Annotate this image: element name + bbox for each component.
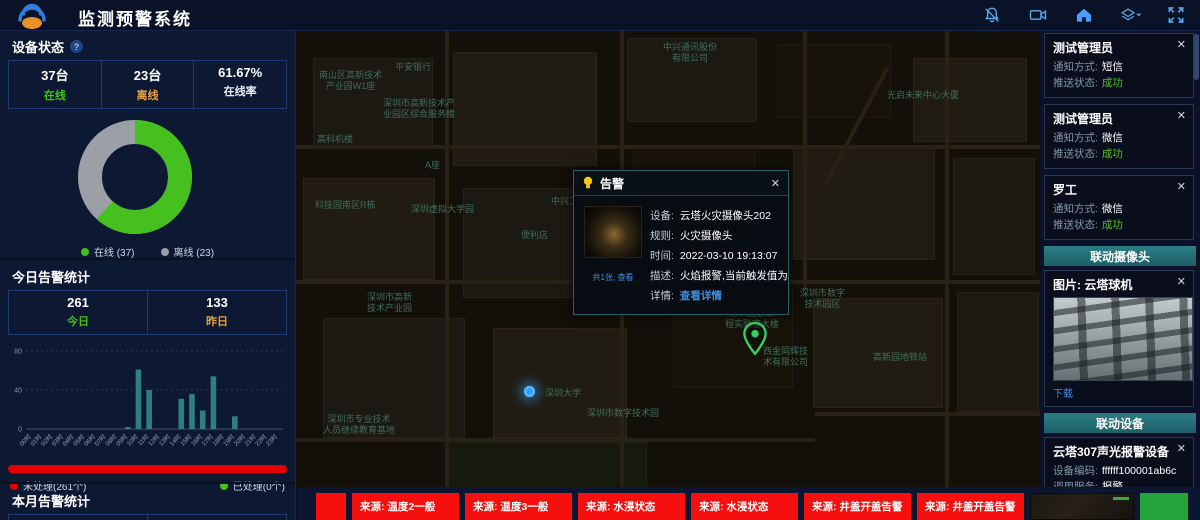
field-label: 推送状态: (1053, 219, 1098, 231)
bar (189, 394, 195, 429)
field-value: 成功 (1102, 148, 1123, 160)
stat-label: 在线率 (194, 83, 286, 99)
map-label: 深圳大学 (545, 388, 581, 399)
ticker-snapshot-image[interactable] (1030, 493, 1134, 520)
svg-text:23时: 23时 (264, 433, 279, 448)
fullscreen-icon[interactable] (1166, 4, 1188, 26)
alert-location-pin[interactable] (742, 322, 768, 356)
map-label: 深圳市专业技术 人员继续教育基地 (323, 414, 395, 436)
hourly-alerts-bar-chart: 0408000时01时02时03时04时05时06时07时08时09时10时11… (6, 339, 289, 461)
download-link[interactable]: 下载 (1053, 385, 1185, 400)
popup-field-label: 详情: (650, 286, 674, 306)
field-value: 微信 (1102, 203, 1123, 215)
popup-field-row: 详情:查看详情 (650, 286, 788, 306)
popup-field-label: 规则: (650, 226, 674, 246)
field-label: 通知方式: (1053, 132, 1098, 144)
field-label: 通知方式: (1053, 61, 1098, 73)
map-label: 深圳市高新 技术产业园 (367, 292, 412, 314)
today-alerts-title: 今日告警统计 (0, 260, 295, 290)
monitoring-dashboard: 监测预警系统 (0, 0, 1200, 520)
device-status-donut-chart (60, 102, 210, 252)
popup-field-row: 设备:云塔火灾摄像头202 (650, 206, 788, 226)
legend-label: 离线 (23) (174, 244, 215, 259)
map-label: 深圳市高新技术产 业园区综合服务楼 (383, 98, 455, 120)
stat-cell: 763 (9, 515, 148, 520)
close-icon[interactable]: ✕ (1177, 442, 1186, 455)
notification-card: 测试管理员✕通知方式:短信推送状态:成功 (1044, 33, 1194, 98)
notification-status-row: 推送状态:成功 (1053, 146, 1185, 162)
ticker-alert-item[interactable] (316, 493, 346, 520)
map-label: 光启未来中心大厦 (887, 90, 959, 101)
app-title: 监测预警系统 (78, 5, 192, 30)
notification-card: 罗工✕通知方式:微信推送状态:成功 (1044, 175, 1194, 240)
app-header: 监测预警系统 (0, 0, 1200, 31)
bar (232, 416, 238, 429)
popup-field-row: 时间:2022-03-10 19:13:07 (650, 246, 788, 266)
notification-status-row: 推送状态:成功 (1053, 75, 1185, 91)
notification-method-row: 通知方式:微信 (1053, 201, 1185, 217)
map-label: 高科机楼 (317, 134, 353, 145)
notification-method-row: 通知方式:微信 (1053, 130, 1185, 146)
ticker-alert-item[interactable]: 来源: 水浸状态 (578, 493, 685, 520)
field-value: 微信 (1102, 132, 1123, 144)
popup-field-value: 云塔火灾摄像头202 (680, 206, 771, 226)
stat-label: 今日 (9, 313, 147, 329)
device-status-section: 设备状态 ? 37台在线23台离线61.67%在线率 在线 (37)离线 (23… (0, 30, 295, 109)
today-alerts-stats: 261今日133昨日 (8, 290, 287, 335)
view-details-link[interactable]: 查看详情 (680, 286, 722, 306)
layers-icon[interactable] (1120, 4, 1142, 26)
map-label: 便利店 (521, 230, 548, 241)
close-icon[interactable]: ✕ (1177, 109, 1186, 122)
stat-label: 在线 (9, 87, 101, 103)
stat-value: 23台 (102, 65, 194, 84)
map[interactable]: 中兴通讯股份 有限公司平安银行南山区高新技术 产业园W1座深圳市高新技术产 业园… (295, 30, 1040, 487)
notification-name: 罗工 (1053, 181, 1185, 198)
stat-cell: 1146 (148, 515, 286, 520)
stat-value: 261 (9, 295, 147, 310)
header-toolbar (982, 4, 1188, 26)
map-label: 深圳虚拟大学园 (411, 204, 474, 215)
bar (146, 390, 152, 429)
stat-label: 离线 (102, 87, 194, 103)
field-label: 设备编码: (1053, 465, 1098, 477)
alert-popup-close-icon[interactable]: ✕ (771, 177, 780, 190)
device-cluster-dot[interactable] (524, 386, 535, 397)
field-value: 成功 (1102, 219, 1123, 231)
bar (211, 376, 217, 429)
field-value: ffffff100001ab6c (1102, 465, 1176, 477)
field-label: 推送状态: (1053, 148, 1098, 160)
popup-field-label: 设备: (650, 206, 674, 226)
close-icon[interactable]: ✕ (1177, 275, 1186, 288)
map-label: 中兴通讯股份 有限公司 (663, 42, 717, 64)
bar (125, 427, 131, 429)
field-label: 推送状态: (1053, 77, 1098, 89)
stat-value: 37台 (9, 65, 101, 84)
alert-thumb-wrap: 共1张, 查看 (584, 206, 642, 306)
bar (136, 370, 142, 429)
alert-popup: 告警 ✕ 共1张, 查看 设备:云塔火灾摄像头202规则:火灾摄像头时间:202… (573, 170, 789, 315)
bell-muted-icon[interactable] (982, 4, 1004, 26)
stat-value: 133 (148, 295, 286, 310)
field-value: 短信 (1102, 61, 1123, 73)
ticker-green-block[interactable] (1140, 493, 1188, 520)
alert-popup-fields: 设备:云塔火灾摄像头202规则:火灾摄像头时间:2022-03-10 19:13… (650, 206, 788, 306)
ticker-items: 来源: 温度2一般来源: 温度3一般来源: 水浸状态来源: 水浸状态来源: 井盖… (316, 493, 1024, 520)
month-alerts-section: 本月告警统计 7631146 (0, 482, 295, 520)
alert-ticker: 来源: 温度2一般来源: 温度3一般来源: 水浸状态来源: 水浸状态来源: 井盖… (298, 487, 1200, 520)
legend-dot (161, 248, 169, 256)
camera-card: 图片: 云塔球机 ✕ 下载 (1044, 270, 1194, 407)
popup-field-label: 描述: (650, 266, 674, 286)
legend-item: 离线 (23) (161, 244, 215, 259)
close-icon[interactable]: ✕ (1177, 38, 1186, 51)
linked-cameras-header[interactable]: 联动摄像头 (1044, 246, 1196, 266)
notification-card: 测试管理员✕通知方式:微信推送状态:成功 (1044, 104, 1194, 169)
help-icon[interactable]: ? (70, 40, 83, 53)
notification-name: 测试管理员 (1053, 39, 1185, 56)
alert-snapshot-caption[interactable]: 共1张, 查看 (584, 272, 642, 283)
svg-text:0: 0 (18, 427, 22, 434)
alert-popup-body: 共1张, 查看 设备:云塔火灾摄像头202规则:火灾摄像头时间:2022-03-… (574, 196, 788, 314)
ticker-alert-item[interactable]: 来源: 井盖开盖告警 (917, 493, 1024, 520)
popup-field-label: 时间: (650, 246, 674, 266)
ticker-alert-item[interactable]: 来源: 温度3一般 (465, 493, 572, 520)
map-label: 平安银行 (395, 62, 431, 73)
svg-text:40: 40 (14, 388, 22, 395)
device-name: 云塔307声光报警设备 (1053, 443, 1185, 460)
legend-item: 在线 (37) (81, 244, 135, 259)
notification-name: 测试管理员 (1053, 110, 1185, 127)
bulb-icon (582, 176, 594, 190)
map-label: 南山区高新技术 产业园W1座 (319, 70, 382, 92)
right-panel: 测试管理员✕通知方式:短信推送状态:成功测试管理员✕通知方式:微信推送状态:成功… (1040, 30, 1200, 487)
stat-cell: 37台在线 (9, 61, 102, 108)
notification-list: 测试管理员✕通知方式:短信推送状态:成功测试管理员✕通知方式:微信推送状态:成功… (1040, 33, 1200, 240)
bar (178, 399, 184, 429)
alert-popup-header: 告警 ✕ (574, 171, 788, 196)
alert-snapshot-image[interactable] (584, 206, 642, 258)
legend-label: 在线 (37) (94, 244, 135, 259)
device-field-row: 设备编码:ffffff100001ab6c (1053, 463, 1185, 479)
map-label: 科技园南区R栋 (315, 200, 376, 211)
ticker-alert-item[interactable]: 来源: 温度2一般 (352, 493, 459, 520)
map-label: 深圳市数字 技术园区 (800, 288, 845, 310)
donut-legend: 在线 (37)离线 (23) (0, 244, 295, 259)
map-label: 深圳市数字技术园 (587, 408, 659, 419)
field-label: 通知方式: (1053, 203, 1098, 215)
month-alerts-title: 本月告警统计 (0, 484, 295, 514)
camera-card-title: 图片: 云塔球机 (1053, 276, 1185, 293)
ticker-alert-item[interactable]: 来源: 水浸状态 (691, 493, 798, 520)
stat-cell: 23台离线 (102, 61, 195, 108)
month-alerts-stats: 7631146 (8, 514, 287, 520)
alert-popup-title: 告警 (600, 175, 765, 192)
unhandled-progress-bar (8, 465, 287, 473)
stat-cell: 133昨日 (148, 291, 286, 334)
popup-field-value: 火灾摄像头 (680, 226, 733, 246)
stat-cell: 61.67%在线率 (194, 61, 286, 108)
camera-photo[interactable] (1053, 297, 1193, 381)
map-label: 高新园地铁站 (873, 352, 927, 363)
popup-field-value: 火焰报警,当前触发值为... (680, 266, 788, 286)
map-label: A座 (425, 160, 440, 171)
svg-text:80: 80 (14, 349, 22, 356)
close-icon[interactable]: ✕ (1177, 180, 1186, 193)
stat-value: 61.67% (194, 65, 286, 80)
popup-field-row: 规则:火灾摄像头 (650, 226, 788, 246)
stat-cell: 261今日 (9, 291, 148, 334)
home-icon[interactable] (1074, 4, 1096, 26)
field-value: 成功 (1102, 77, 1123, 89)
video-camera-icon[interactable] (1028, 4, 1050, 26)
stat-label: 昨日 (148, 313, 286, 329)
notification-status-row: 推送状态:成功 (1053, 217, 1185, 233)
app-logo-icon (14, 0, 50, 34)
legend-dot (81, 248, 89, 256)
scrollbar[interactable] (1194, 34, 1199, 80)
popup-field-value: 2022-03-10 19:13:07 (680, 246, 778, 266)
device-status-title: 设备状态 ? (0, 30, 295, 60)
popup-field-row: 描述:火焰报警,当前触发值为... (650, 266, 788, 286)
bar (200, 410, 206, 429)
left-panel: 设备状态 ? 37台在线23台离线61.67%在线率 在线 (37)离线 (23… (0, 30, 296, 520)
map-label: 西金同辉技 术有限公司 (763, 346, 808, 368)
today-alerts-section: 今日告警统计 261今日133昨日 0408000时01时02时03时04时05… (0, 258, 295, 493)
ticker-alert-item[interactable]: 来源: 井盖开盖告警 (804, 493, 911, 520)
notification-method-row: 通知方式:短信 (1053, 59, 1185, 75)
linked-devices-header[interactable]: 联动设备 (1044, 413, 1196, 433)
